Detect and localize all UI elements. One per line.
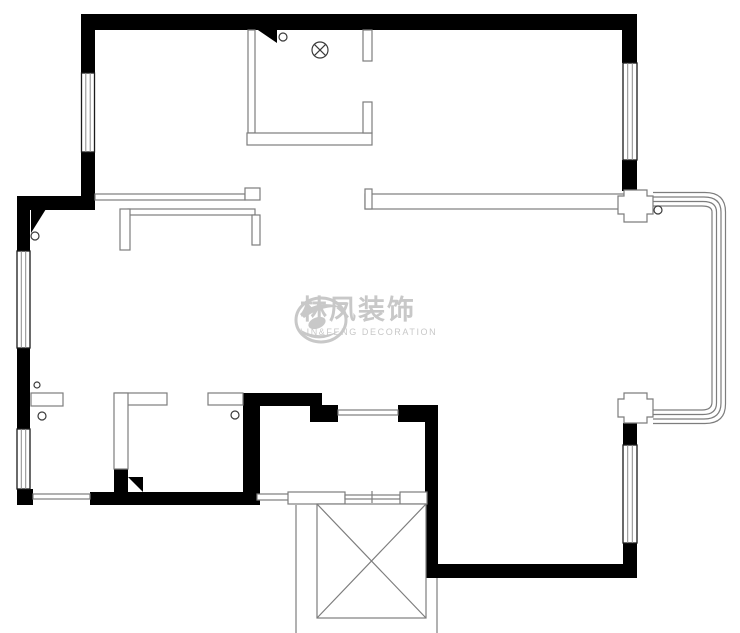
partition-wardrobe-top [128,209,255,215]
door-triangle-bath [255,28,277,43]
partition-bedroom1-south-end [245,188,260,200]
floor-plan: 林凤装饰 LIN&FENG DECORATION [0,0,740,633]
wall-left-c [17,489,33,505]
interior-partitions [31,30,625,504]
entry-door-opening [338,410,398,415]
hinge-circle [279,33,287,41]
door-triangle-study [128,477,143,492]
junction-bottom [618,393,653,423]
balcony-junctions [618,190,653,423]
window-left-upper [82,73,95,152]
window-left-lower [17,429,30,489]
wall-left-b [17,348,30,429]
partition-wardrobe-right-stub [252,215,260,245]
partition-living-north [365,194,625,209]
door-marks [31,28,277,492]
hinge-circle [654,206,662,214]
floor-plan-drawing [0,0,740,633]
partition-bath-west [248,30,255,133]
partition-bath-east-lower [363,102,372,133]
hinge-circle [34,382,40,388]
wall-left-upper-a [81,14,95,73]
partition-study-west [114,393,128,469]
lintel-lobby-left [288,492,345,504]
wall-hall-vertical [243,393,260,505]
wall-top [83,14,637,30]
corridor-sill-a [257,494,290,500]
partition-living-north-end [365,189,372,209]
fixture-left-wall [31,393,63,406]
elevator-shaft [296,504,437,633]
wall-right-upper-a [622,14,637,63]
opening-bottom-left [33,494,90,499]
balcony-railing [653,193,726,424]
lintel-lobby-right [400,492,427,504]
floor-drain-icon [312,42,328,58]
wall-bottom-right [425,564,637,578]
wall-hall-arm [255,393,322,406]
wall-right-lower-a [623,423,637,445]
window-left-middle [17,251,30,348]
wall-closet-pier [114,469,128,493]
wall-left-a [17,210,30,251]
window-right-upper [623,63,637,160]
wall-entry-step-right [398,405,427,422]
partition-bedroom1-south [95,194,245,200]
partition-bath-south [247,133,372,145]
partition-bath-east-upper [363,30,372,61]
partition-wardrobe-left-stub [120,209,130,250]
wall-right-upper-b [622,160,637,191]
hinge-circle [38,412,46,420]
wall-bottom-left [90,492,257,505]
window-right-lower [623,445,637,543]
wall-entry-step-left [310,405,338,422]
wall-right-lower-b [623,543,637,578]
hinge-circle [231,411,239,419]
hinge-circle [31,232,39,240]
wall-left-corner [17,196,95,210]
door-triangle-left [31,209,46,233]
lintel-study-right [208,393,243,405]
